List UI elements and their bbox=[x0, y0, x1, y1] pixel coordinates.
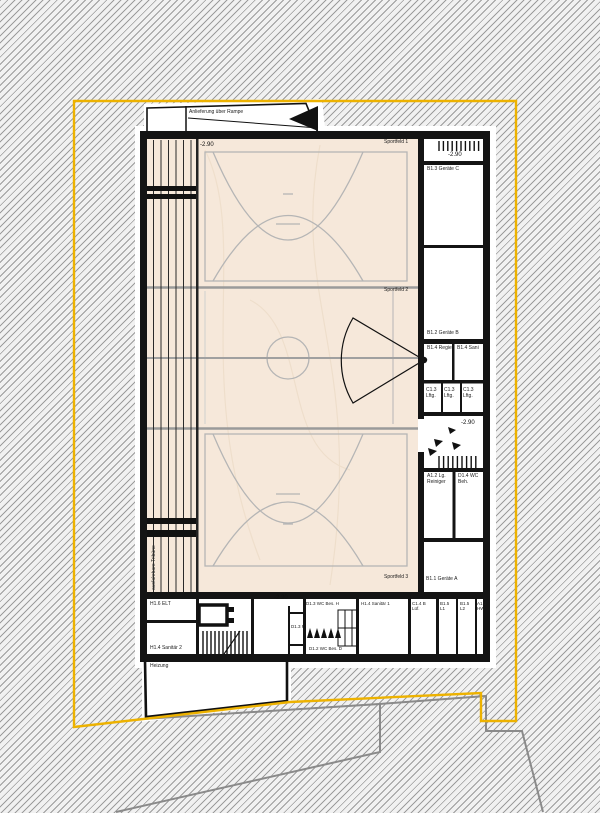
plan-geometry bbox=[0, 0, 600, 813]
delivery-note-label: Anlieferung über Rampe bbox=[189, 110, 243, 116]
room-sani-label: B1.4 Sani bbox=[457, 346, 479, 352]
sportfeld-2-label: Sportfeld 2 bbox=[384, 288, 408, 294]
room-lftg2-label: C1.3 Lftg. bbox=[444, 388, 458, 399]
room-wc-beh-label: D1.4 WC Beh. bbox=[458, 474, 482, 485]
room-elt-label: H1.6 ELT bbox=[150, 602, 171, 608]
sportfeld-1-label: Sportfeld 1 bbox=[384, 140, 408, 146]
room-lftg3-label: C1.3 Lftg. bbox=[463, 388, 477, 399]
delivery-ramp bbox=[147, 104, 318, 134]
room-lftg1-label: C1.3 Lftg. bbox=[426, 388, 440, 399]
room-reiniger-label: A1.2 Lg. Reiniger bbox=[427, 474, 451, 485]
room-flur-label: D1.3 F bbox=[291, 624, 305, 629]
level-mark-top-right: -2.90 bbox=[448, 153, 462, 159]
room-sanitaer1-label: H1.4 Sanitär 1 bbox=[361, 601, 390, 606]
tribune-label: ausfahrbare Tribüne bbox=[152, 545, 158, 590]
room-sanitaer2-label: H1.4 Sanitär 2 bbox=[150, 646, 182, 652]
room-geraete-b-label: B1.2 Geräte B bbox=[427, 331, 459, 337]
sportfeld-3-label: Sportfeld 3 bbox=[384, 575, 408, 581]
level-mark-top-left: -2.90 bbox=[200, 143, 214, 149]
room-hw-label: A1.1 HW bbox=[477, 601, 489, 611]
room-wc-bes-d-label: D1.2 WC Bes. D bbox=[309, 646, 342, 651]
room-b15-l1-label: B1.5 L1 bbox=[440, 601, 453, 611]
elevator-shaft bbox=[199, 605, 234, 625]
room-wc-bes-h-label: D1.3 WC Bes. H bbox=[306, 601, 339, 606]
room-regie-label: B1.4 Regie bbox=[427, 346, 452, 352]
level-mark-mid-right: -2.90 bbox=[461, 421, 475, 427]
room-geraete-c-label: B1.3 Geräte C bbox=[427, 167, 459, 173]
room-lueftung-b-label: C1.4 B Lüf. bbox=[412, 601, 432, 611]
floor-plan-drawing: Anlieferung über Rampe -2.90 -2.90 -2.90… bbox=[0, 0, 600, 813]
room-heizung-label: Heizung bbox=[150, 664, 168, 670]
room-b15-l2-label: B1.5 L2 bbox=[460, 601, 473, 611]
level-mark-bottom: -2.90 bbox=[274, 596, 288, 602]
room-geraete-a-label: B1.1 Geräte A bbox=[426, 577, 457, 583]
